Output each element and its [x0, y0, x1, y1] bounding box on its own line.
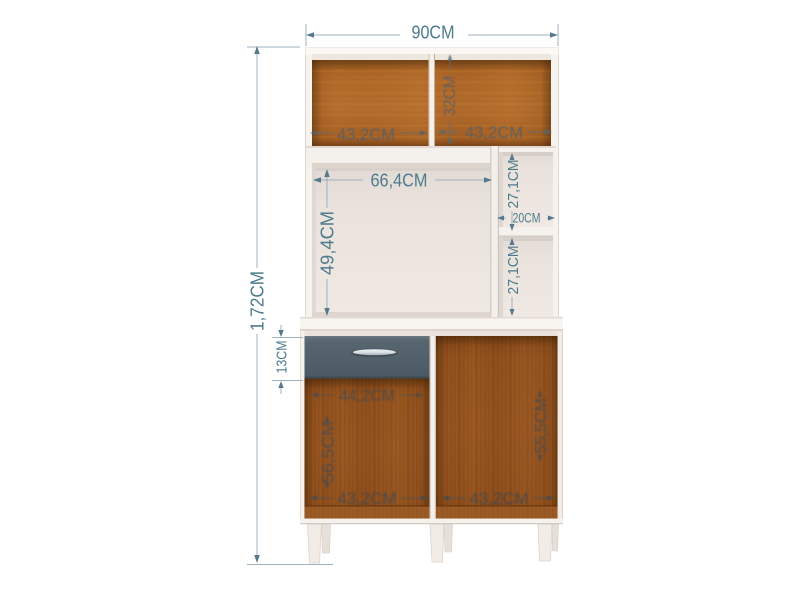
- svg-text:43,2CM: 43,2CM: [465, 123, 523, 142]
- svg-text:66,4CM: 66,4CM: [371, 171, 428, 191]
- svg-text:1,72CM: 1,72CM: [248, 271, 268, 331]
- svg-text:90CM: 90CM: [412, 23, 455, 43]
- svg-text:55,5CM: 55,5CM: [533, 398, 551, 454]
- svg-text:32CM: 32CM: [440, 76, 459, 117]
- svg-text:43,2CM: 43,2CM: [470, 490, 529, 508]
- svg-text:27,1CM: 27,1CM: [505, 160, 522, 209]
- svg-text:56,5CM: 56,5CM: [320, 421, 338, 483]
- svg-text:13CM: 13CM: [274, 341, 291, 374]
- svg-text:43,2CM: 43,2CM: [337, 125, 395, 144]
- svg-text:43,2CM: 43,2CM: [338, 490, 397, 508]
- svg-text:49,4CM: 49,4CM: [318, 211, 338, 275]
- svg-text:20CM: 20CM: [513, 211, 541, 226]
- svg-text:27,1CM: 27,1CM: [505, 246, 522, 295]
- svg-text:44,2CM: 44,2CM: [339, 387, 395, 405]
